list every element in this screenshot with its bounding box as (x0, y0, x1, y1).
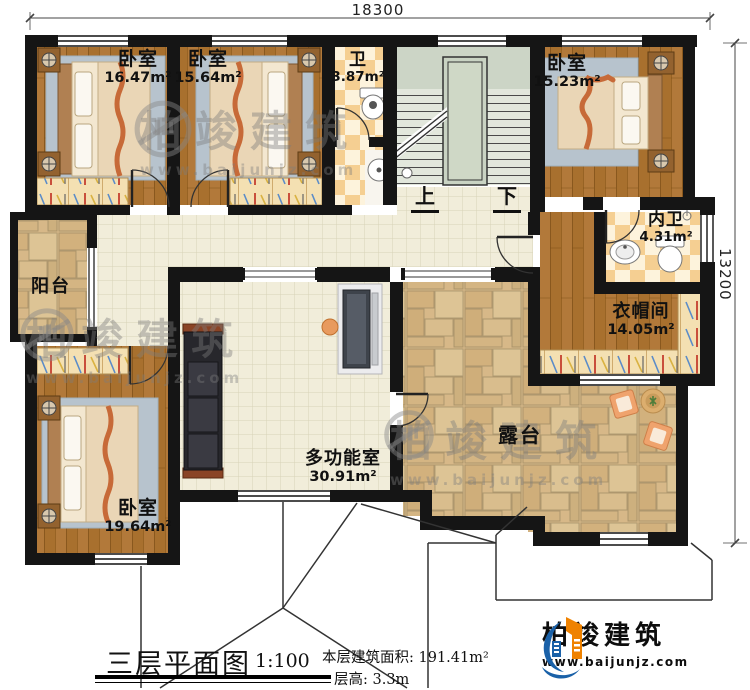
stair-up-label: 上 (411, 180, 439, 213)
room-label-bedroom-top-mid: 卧室 15.64m² (163, 49, 253, 87)
wardrobe-bedroom-top-mid (230, 178, 322, 205)
staircase (393, 47, 530, 185)
wardrobe-bedroom-top-left (37, 178, 128, 205)
terrace-floor-west (403, 282, 528, 516)
side-table-ball (322, 319, 338, 335)
dimension-top-label: 18300 (340, 1, 416, 19)
floor-height-label: 层高: (334, 672, 368, 688)
room-label-bedroom-bottom-left: 卧室 19.64m² (93, 498, 183, 536)
stair-down-label: 下 (493, 180, 521, 213)
room-label-ensuite-bathroom: 内卫 4.31m² (622, 211, 710, 245)
room-label-bathroom: 卫 3.87m² (330, 51, 386, 85)
closet-cloakroom-south (540, 350, 678, 374)
title-underline-thin (95, 682, 331, 683)
tv-panel (338, 284, 382, 374)
room-label-multifunction-room: 多功能室 30.91m² (298, 449, 388, 485)
dimension-right-label: 13200 (716, 248, 734, 301)
floor-area-value: 191.41m² (419, 650, 489, 666)
floor-area-label: 本层建筑面积: (322, 650, 414, 666)
corridor-extension-floor (88, 215, 168, 346)
floor-height-value: 3.3m (373, 672, 410, 688)
title-underline-thick (95, 675, 331, 679)
room-label-terrace: 露台 (494, 424, 546, 446)
floorplan-page: 柏竣建筑 www.baijunjz.com 柏竣建筑 www.baijunjz.… (0, 0, 750, 690)
floor-height-line: 层高: 3.3m (334, 668, 409, 689)
floorplan-drawing (0, 0, 750, 690)
floor-drain (402, 168, 412, 178)
room-label-cloakroom: 衣帽间 14.05m² (596, 302, 686, 338)
wardrobe-bedroom-bottom-left (37, 348, 128, 374)
floor-area-line: 本层建筑面积: 191.41m² (322, 646, 489, 667)
company-logo: 柏竣建筑 www.baijunjz.com (536, 615, 689, 669)
plan-scale: 1:100 (255, 650, 310, 672)
room-label-bedroom-top-right: 卧室 15.23m² (522, 53, 612, 91)
company-logo-icon (536, 615, 588, 679)
room-label-balcony: 阳台 (27, 277, 75, 297)
sofa (183, 324, 223, 478)
